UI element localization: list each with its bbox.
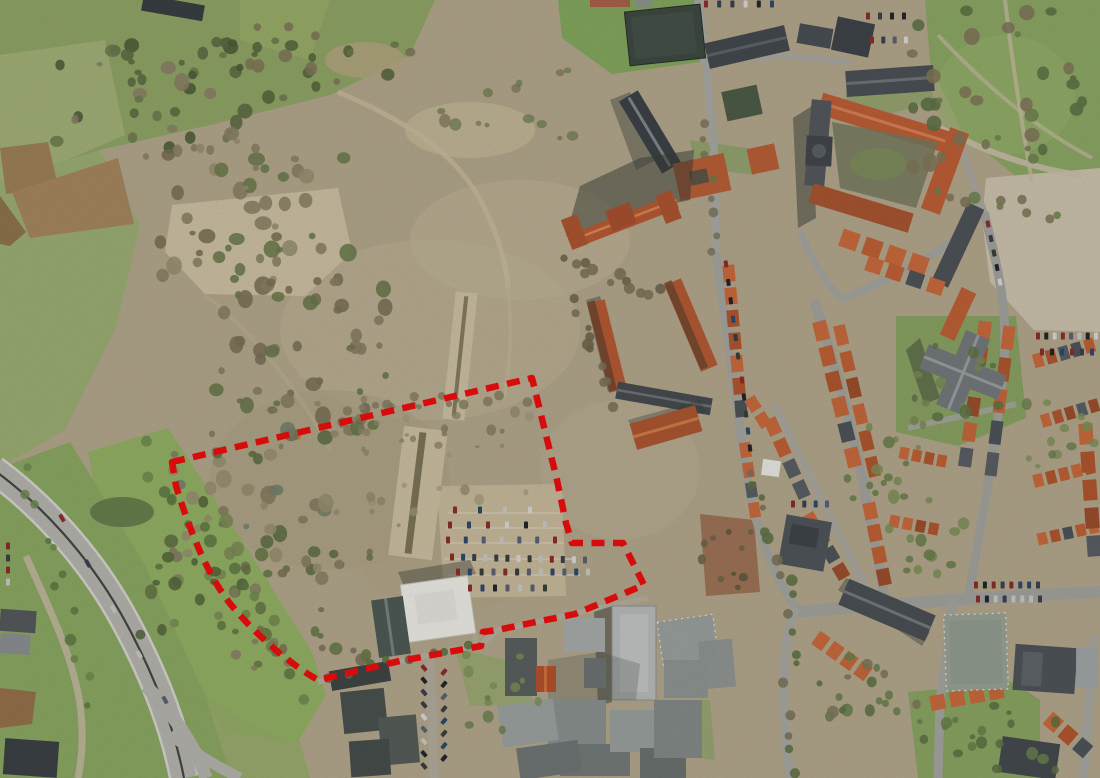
photo-grain-overlay <box>0 0 1100 778</box>
aerial-photo <box>0 0 1100 778</box>
map-viewport <box>0 0 1100 778</box>
